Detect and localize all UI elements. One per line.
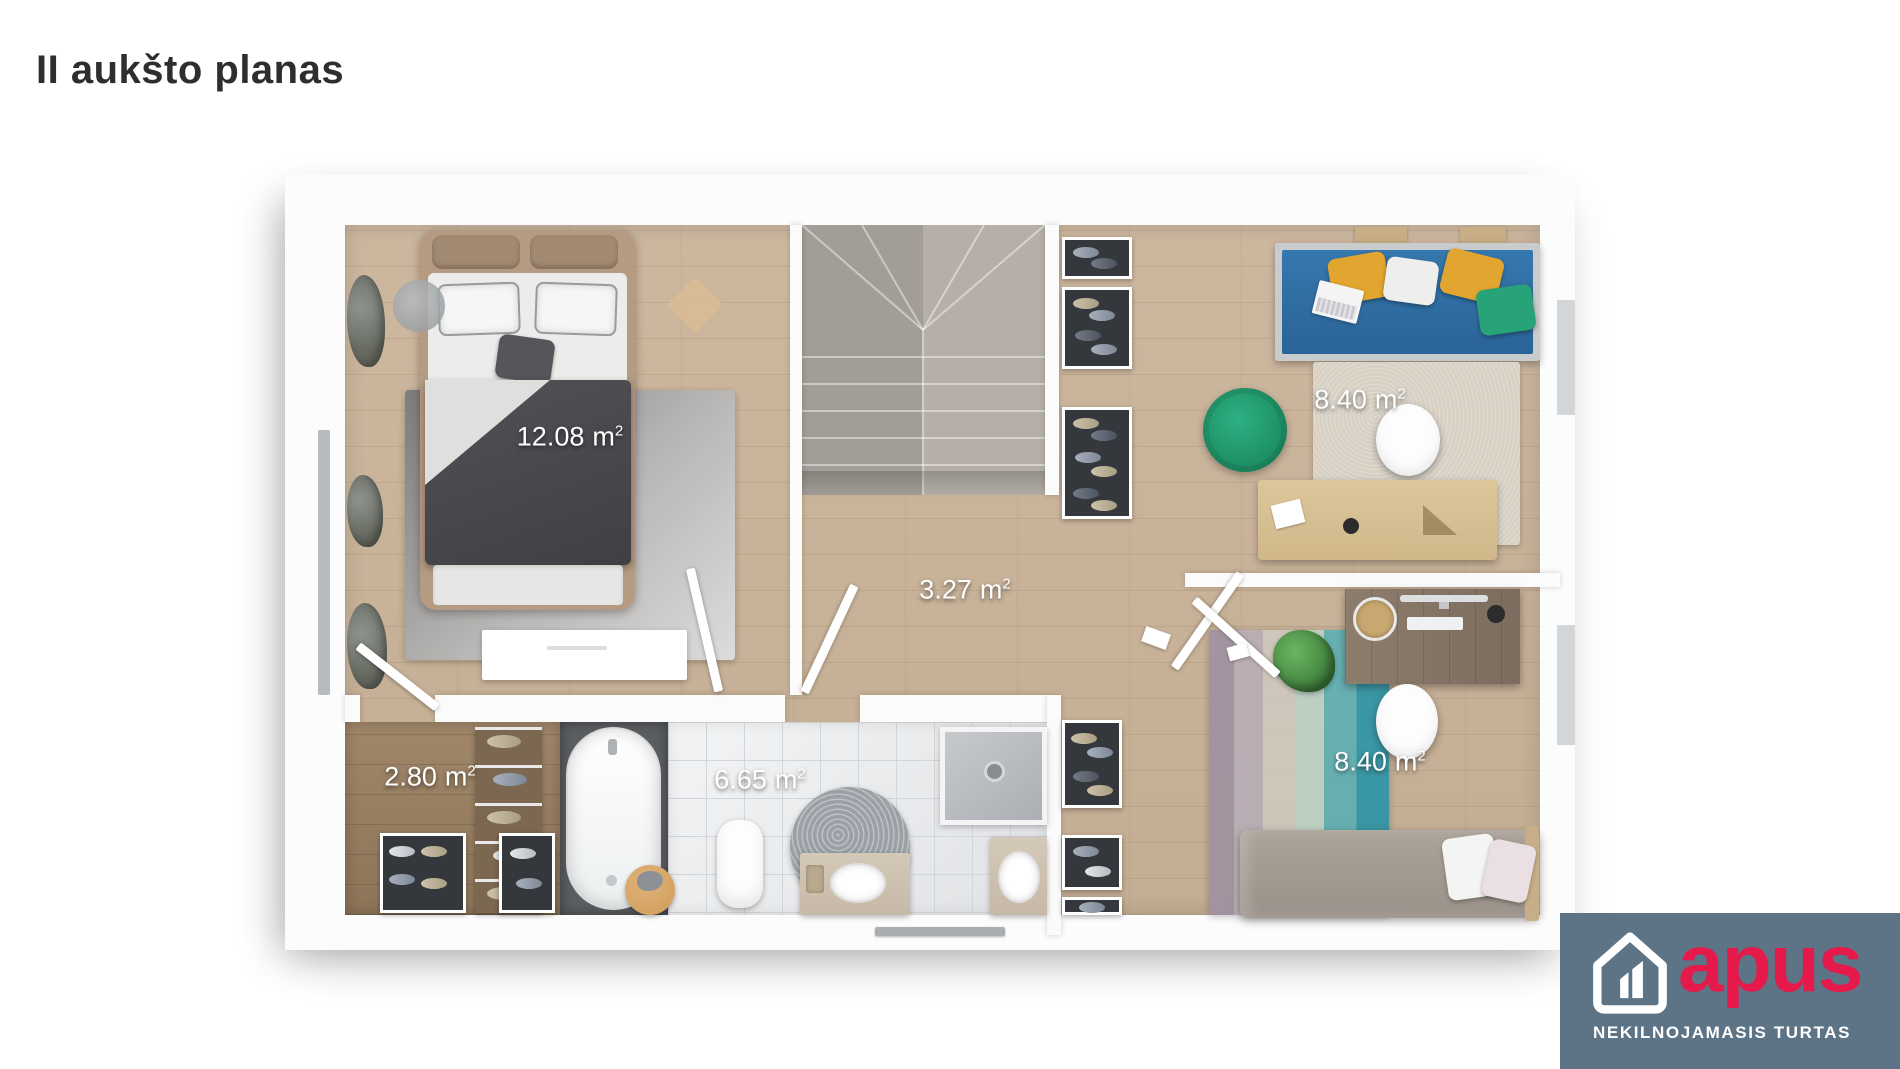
office-desk [1258,480,1497,560]
wall-stairs-right [1045,225,1059,495]
room-area-label-wardrobe: 2.80m2 [384,762,475,793]
headboard-cushion [530,235,618,269]
room-area-label-hallway: 3.27m2 [919,575,1010,606]
brand-name: apus [1678,919,1861,1009]
shoe-shelf [1062,287,1132,369]
room-area-label-office: 8.40m2 [1314,385,1405,416]
headboard-cushion [432,235,520,269]
shoe-shelf [1062,237,1132,279]
house-icon [1592,931,1668,1015]
tub-faucet [608,739,617,755]
room-area-label-bedroom2: 8.40m2 [1334,747,1425,778]
brand-logo: apus NEKILNOJAMASIS TURTAS [1560,913,1900,1069]
single-bed [1240,830,1540,918]
brand-tagline: NEKILNOJAMASIS TURTAS [1593,1023,1851,1043]
shoe-shelf [1062,720,1122,808]
floor-plan: 12.08m2 8.40m2 3.27m2 2.80m2 6.65m2 8.40… [285,175,1575,950]
staircase-steps [802,225,1045,495]
wooden-stool [625,865,675,915]
wall-shelf [1460,227,1506,243]
green-pouf [1203,388,1287,472]
wall-stairs-divider [790,225,802,695]
wall-segment [345,695,360,722]
wall-bath-divider [1047,695,1061,935]
wall-segment [435,695,785,722]
pillow [534,282,618,337]
soap-dish [806,865,824,893]
shoe-shelf [1062,835,1122,890]
window-niche [1557,625,1575,745]
toilet [717,820,763,908]
round-tray [1353,597,1397,641]
room-area-label-bathroom: 6.65m2 [714,765,805,796]
accent-pillow [494,333,556,384]
keyboard [1407,617,1463,630]
room-area-label-bedroom1: 12.08m2 [517,422,623,453]
paper-sheet [1271,499,1306,530]
balcony-railing [318,430,330,695]
shoe-shelf [499,833,555,913]
pillow [437,282,521,337]
sink-basin [830,863,886,903]
staircase [802,225,1045,495]
double-bed [420,230,635,610]
shoe-shelf [380,833,466,913]
wall-shelf [1355,227,1407,243]
white-pillow [1382,256,1440,307]
shower-head [987,764,1002,779]
green-pillow [1475,283,1537,336]
desk-lamp [1487,605,1505,623]
foot-sheet [433,565,623,605]
sink-vanity [990,837,1047,915]
monitor-stand [1439,602,1449,609]
closet-handle [547,646,607,650]
page: II aukšto planas [0,0,1900,1069]
wall-segment [860,695,1047,722]
monitor [1400,595,1488,602]
shoe-shelf [1062,407,1132,519]
shower-stall [940,727,1047,825]
set-square [1423,505,1457,535]
built-in-closet [482,630,687,680]
sink-basin [998,851,1040,903]
tub-drain [606,875,617,886]
mug [1343,518,1359,534]
door-handle-bar [875,927,1005,936]
sink-vanity [800,853,910,915]
bedroom2-desk [1345,589,1520,684]
window-niche [1557,300,1575,415]
round-side-table [393,280,445,332]
page-title: II aukšto planas [36,48,344,93]
shoe-shelf [1062,897,1122,915]
staircase-shadow [802,471,1045,497]
